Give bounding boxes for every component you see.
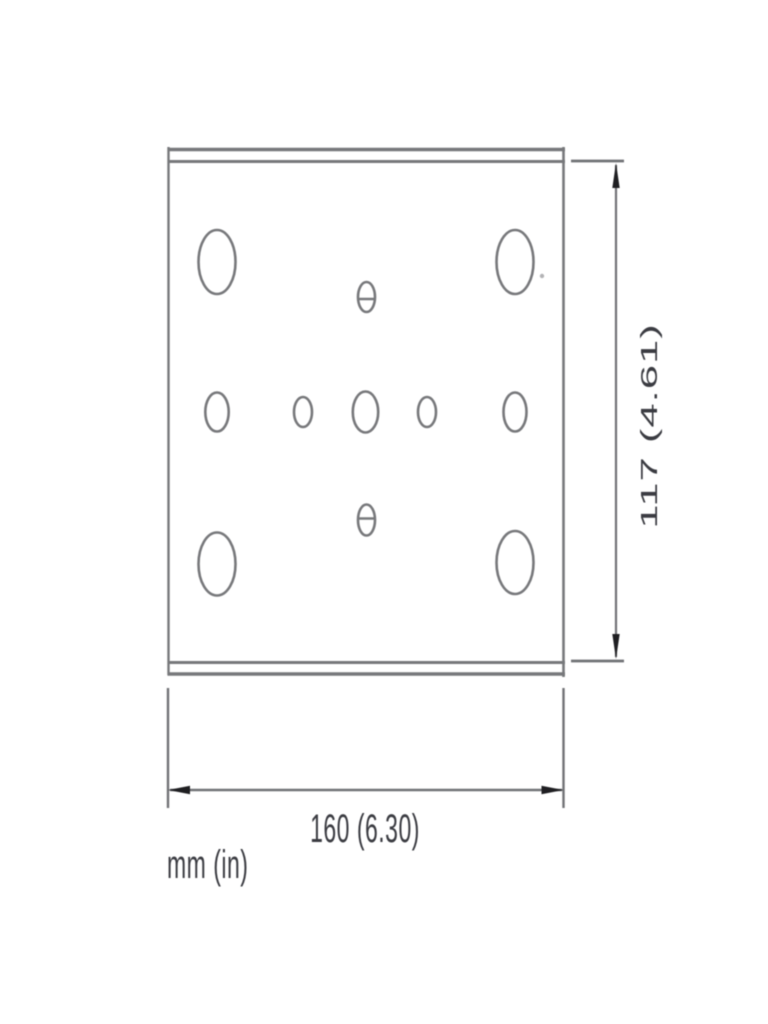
middle-row-holes: [205, 392, 526, 433]
image-artifact-speck: [540, 274, 544, 278]
middle-hole-small-right: [418, 397, 436, 427]
plate-outline: [168, 147, 566, 677]
width-arrow-right: [542, 786, 564, 795]
width-dimension: 160 (6.30): [168, 688, 564, 851]
middle-hole-left: [205, 393, 228, 432]
height-dimension-label: 117 (4.61): [637, 323, 663, 528]
slot-hole-lower: [358, 505, 375, 536]
corner-hole-bottom-left: [199, 533, 236, 596]
corner-holes: [199, 230, 534, 596]
middle-hole-small-left: [294, 397, 312, 427]
height-dimension: 117 (4.61): [571, 161, 662, 661]
slot-hole-upper: [358, 282, 375, 312]
corner-hole-bottom-right: [497, 531, 534, 594]
width-arrow-left: [168, 786, 190, 795]
corner-hole-top-left: [199, 230, 236, 294]
middle-hole-right: [504, 393, 527, 432]
middle-hole-center: [353, 392, 378, 433]
corner-hole-top-right: [497, 230, 534, 294]
slotted-center-holes: [358, 282, 376, 536]
height-arrow-up: [612, 163, 619, 188]
width-dimension-label: 160 (6.30): [310, 805, 420, 850]
technical-drawing-canvas: 117 (4.61) 160 (6.30) mm (in): [0, 0, 768, 1024]
height-arrow-down: [612, 634, 619, 659]
units-note-label: mm (in): [167, 841, 248, 886]
mounting-plate-drawing: 117 (4.61) 160 (6.30) mm (in): [0, 0, 768, 1024]
